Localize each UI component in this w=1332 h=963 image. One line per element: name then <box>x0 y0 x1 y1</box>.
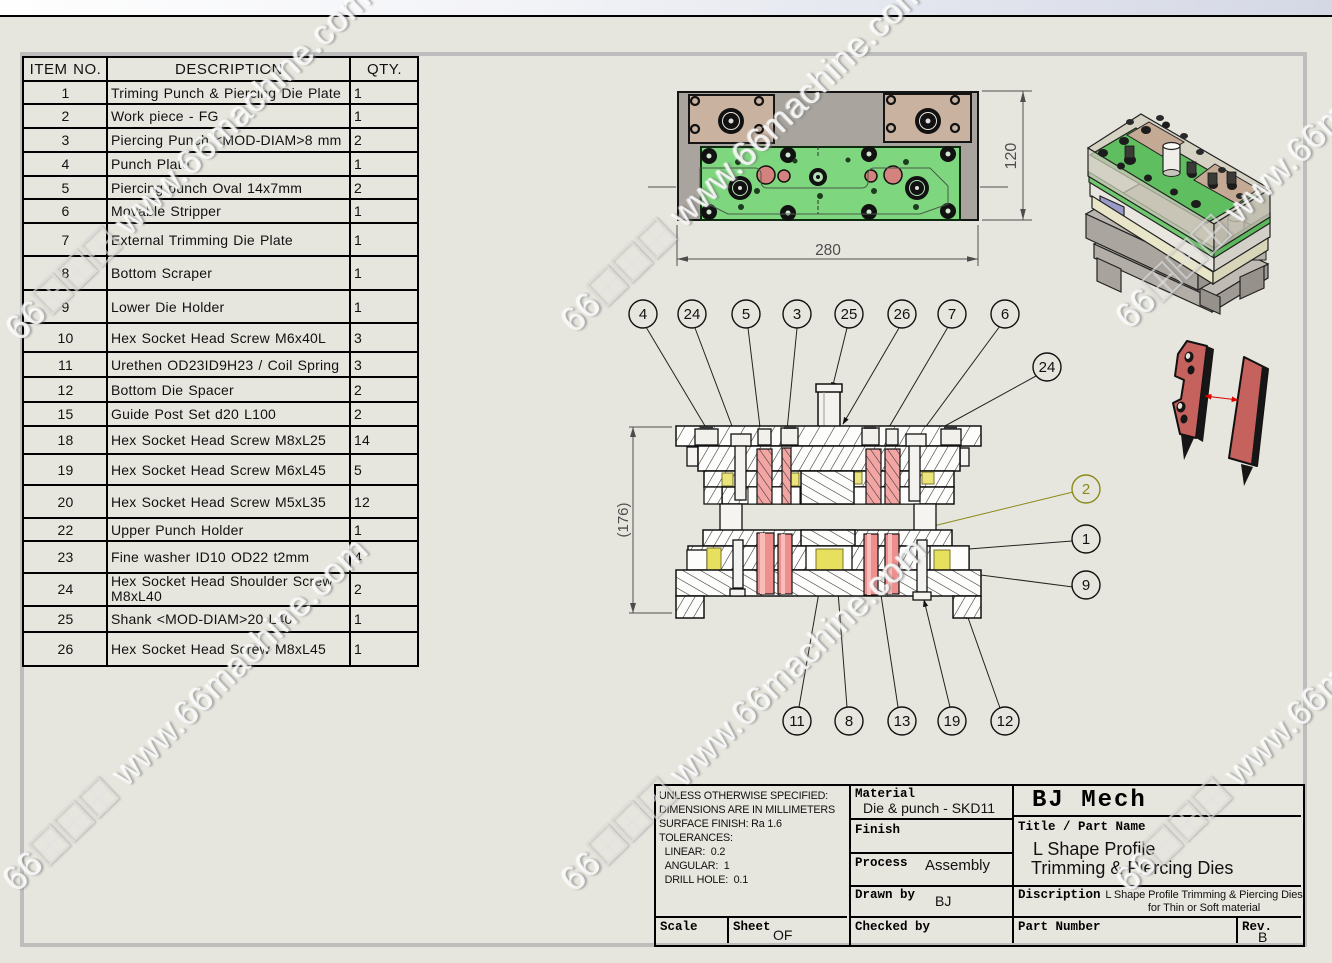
svg-text:8: 8 <box>845 713 853 730</box>
svg-text:7: 7 <box>948 306 956 323</box>
svg-text:3: 3 <box>793 306 801 323</box>
svg-text:12: 12 <box>997 713 1014 730</box>
svg-text:11: 11 <box>789 713 805 730</box>
svg-text:1: 1 <box>1082 531 1090 548</box>
svg-text:26: 26 <box>894 306 911 323</box>
svg-text:19: 19 <box>944 713 961 730</box>
svg-text:9: 9 <box>1082 577 1090 594</box>
svg-text:25: 25 <box>841 306 858 323</box>
svg-text:13: 13 <box>894 713 911 730</box>
svg-text:24: 24 <box>1039 359 1056 376</box>
svg-text:2: 2 <box>1082 481 1090 498</box>
svg-text:280: 280 <box>815 242 841 259</box>
svg-text:24: 24 <box>684 306 701 323</box>
svg-text:(176): (176) <box>615 502 632 537</box>
svg-text:120: 120 <box>1003 143 1020 170</box>
svg-text:5: 5 <box>742 306 750 323</box>
svg-text:6: 6 <box>1001 306 1009 323</box>
svg-text:4: 4 <box>639 306 647 323</box>
